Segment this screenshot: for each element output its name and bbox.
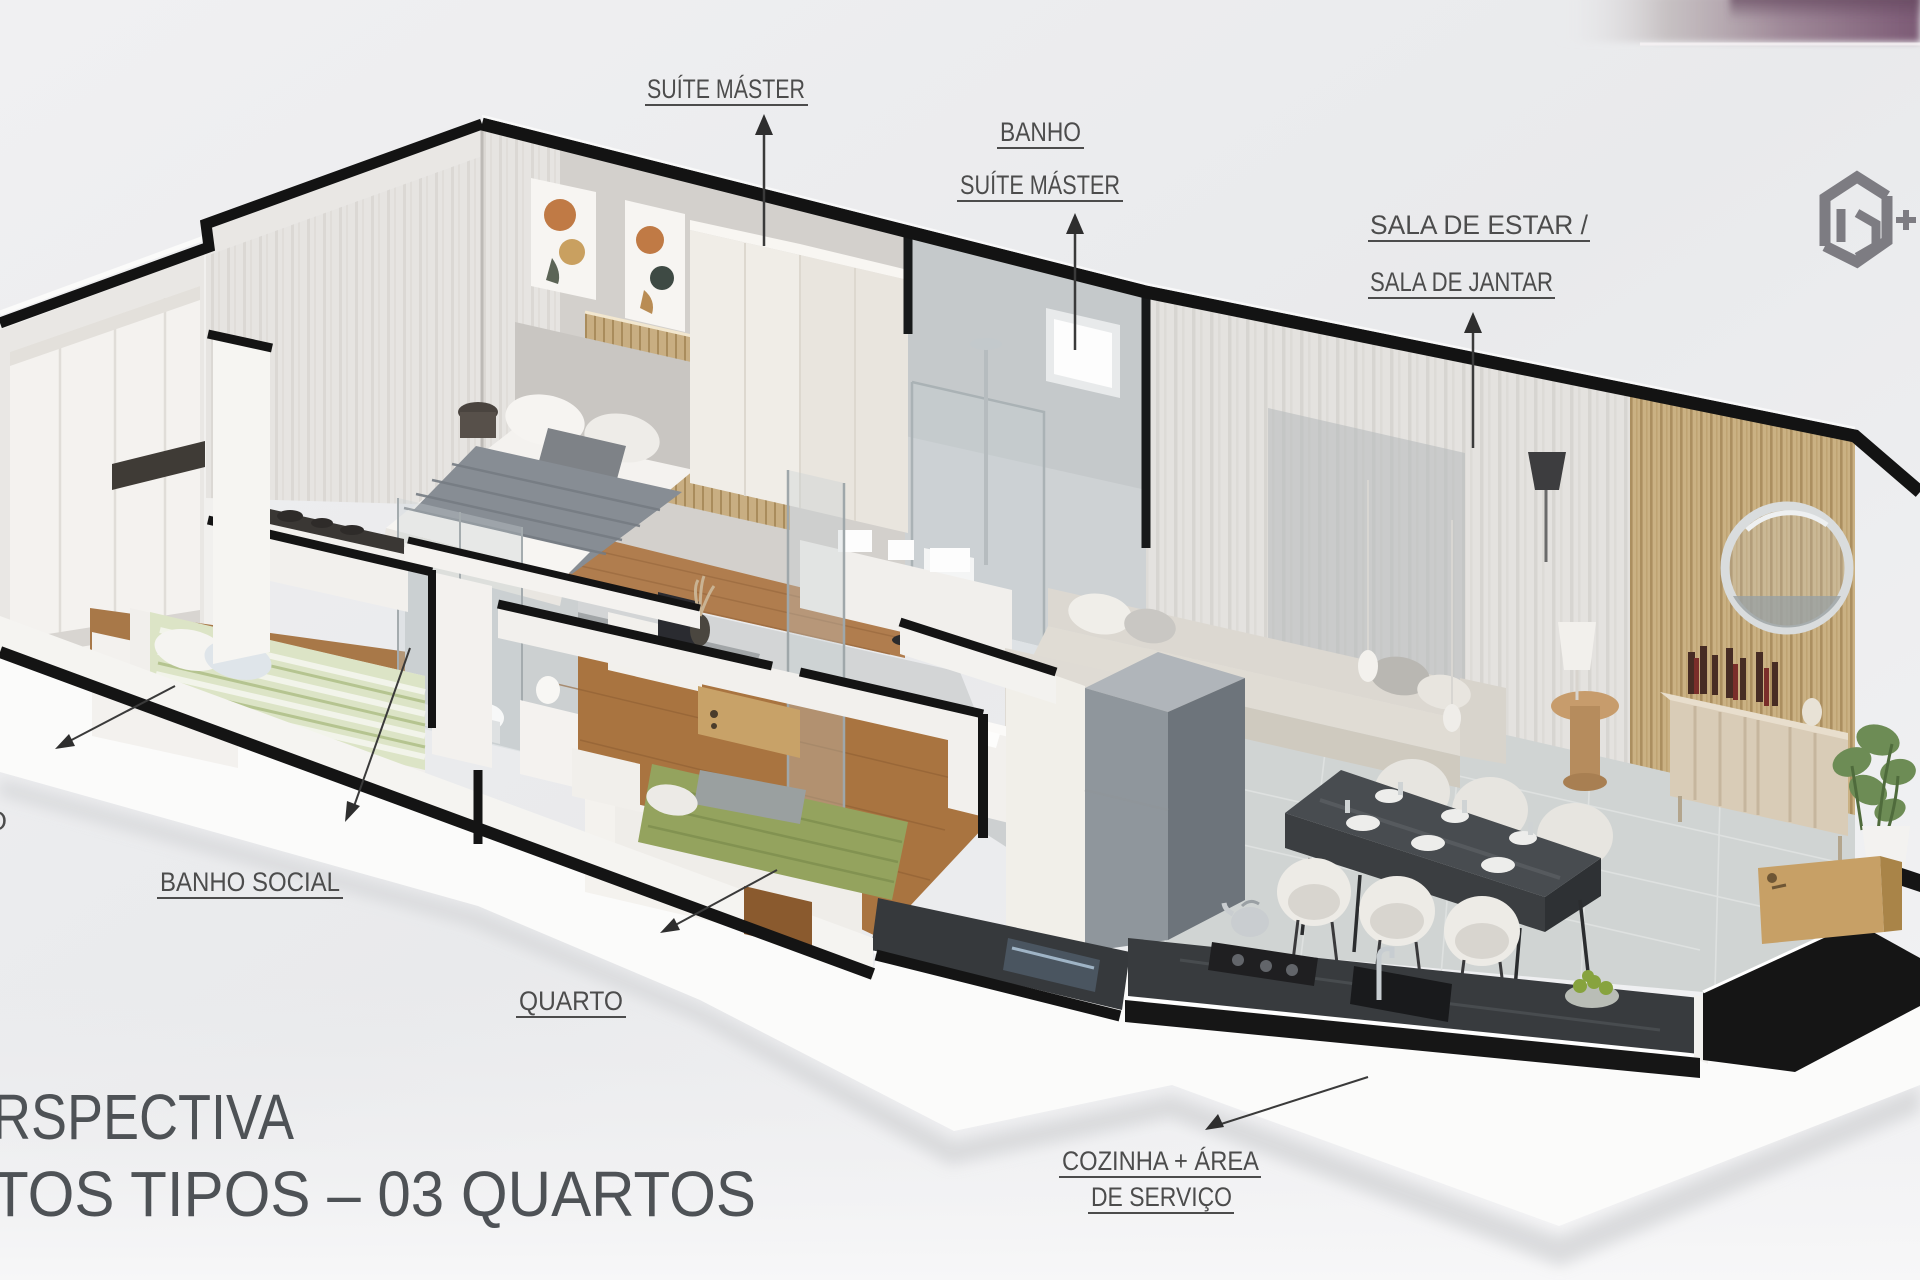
svg-text:DE SERVIÇO: DE SERVIÇO: [1091, 1182, 1232, 1212]
svg-text:SUÍTE MÁSTER: SUÍTE MÁSTER: [960, 170, 1120, 200]
svg-text:QUARTO: QUARTO: [519, 986, 623, 1016]
svg-text:TOS TIPOS – 03 QUARTOS: TOS TIPOS – 03 QUARTOS: [0, 1158, 756, 1230]
svg-text:RSPECTIVA: RSPECTIVA: [0, 1081, 294, 1153]
svg-text:BANHO SOCIAL: BANHO SOCIAL: [160, 867, 340, 897]
svg-text:O: O: [0, 806, 7, 836]
svg-text:SALA DE JANTAR: SALA DE JANTAR: [1370, 267, 1553, 297]
svg-text:BANHO: BANHO: [1000, 117, 1081, 147]
svg-text:COZINHA + ÁREA: COZINHA + ÁREA: [1062, 1146, 1259, 1176]
svg-text:SALA DE ESTAR /: SALA DE ESTAR /: [1370, 210, 1588, 240]
svg-text:SUÍTE MÁSTER: SUÍTE MÁSTER: [647, 74, 805, 104]
